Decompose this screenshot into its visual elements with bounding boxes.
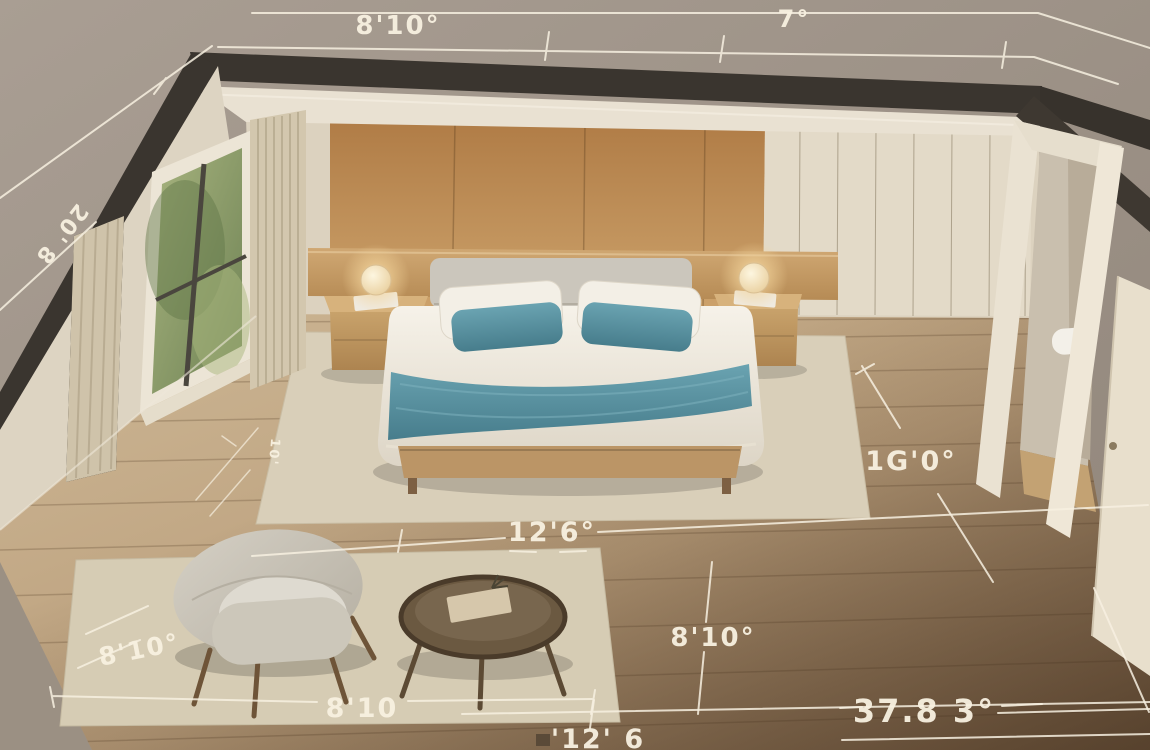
dim-top-width-label: 8'10° xyxy=(355,11,440,41)
curtain-right xyxy=(250,110,306,390)
dim-rug-bottom-label: 8'10 xyxy=(326,693,399,724)
dim-rug-side-label: 10' xyxy=(265,438,282,467)
bed-leg-right xyxy=(722,478,731,494)
dim-floor-right-label: 8'10° xyxy=(670,623,755,653)
bed-leg-left xyxy=(408,478,417,494)
dim-bottom-edge-label: '12' 6 xyxy=(551,724,645,750)
curtain-left xyxy=(66,216,124,482)
lamp-left xyxy=(361,265,391,295)
scene-canvas: 8'10° 7° 20' 8 10' 12'6° 1G'0° 8'10° 8'1… xyxy=(0,0,1150,750)
dim-room-depth-label: 1G'0° xyxy=(865,446,957,477)
dim-bed-width-label: 12'6° xyxy=(508,517,596,548)
dim-top-right-label: 7° xyxy=(778,5,811,33)
lamp-right xyxy=(739,263,769,293)
door-handle xyxy=(1109,442,1117,450)
dim-total-width-label: 37.8 3° xyxy=(853,692,995,730)
floor-mark xyxy=(536,734,550,746)
armchair-cushion xyxy=(210,595,354,667)
bedroom-render: 8'10° 7° 20' 8 10' 12'6° 1G'0° 8'10° 8'1… xyxy=(0,0,1150,750)
